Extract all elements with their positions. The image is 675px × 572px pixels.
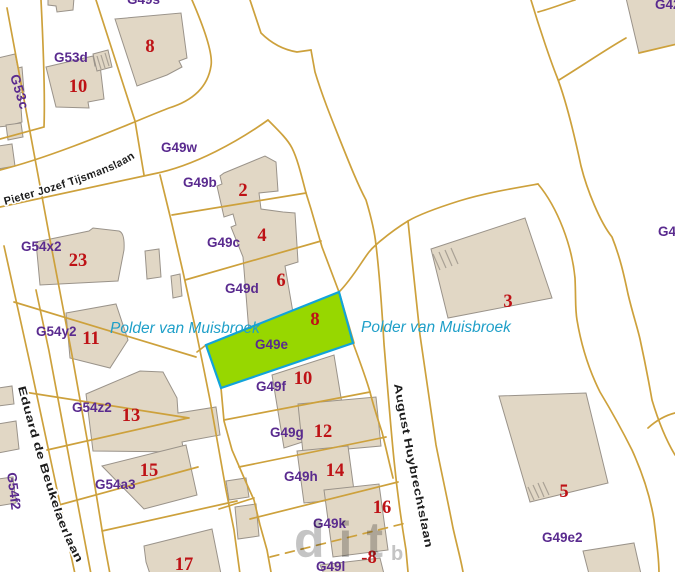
svg-text:G49e2: G49e2 <box>542 530 583 545</box>
svg-text:G54x2: G54x2 <box>21 239 62 254</box>
svg-text:6: 6 <box>276 271 285 291</box>
svg-text:G49d: G49d <box>225 281 259 296</box>
svg-text:8: 8 <box>145 37 154 57</box>
svg-text:3: 3 <box>503 292 512 312</box>
svg-text:G49b: G49b <box>183 175 217 190</box>
svg-text:dit: dit <box>294 512 397 568</box>
svg-text:2: 2 <box>238 181 247 201</box>
svg-text:10: 10 <box>294 369 313 389</box>
svg-text:14: 14 <box>326 461 345 481</box>
svg-text:G49c: G49c <box>207 235 241 250</box>
svg-text:23: 23 <box>69 251 88 271</box>
svg-text:G54z2: G54z2 <box>72 400 112 415</box>
svg-text:G49: G49 <box>658 224 675 239</box>
svg-text:17: 17 <box>175 555 194 572</box>
svg-text:G49w: G49w <box>161 140 198 155</box>
svg-text:G53d: G53d <box>54 50 88 65</box>
svg-text:b: b <box>391 543 403 565</box>
svg-text:G49e: G49e <box>255 337 289 352</box>
svg-text:G49f: G49f <box>256 379 287 394</box>
svg-text:8: 8 <box>310 310 319 330</box>
svg-text:G42: G42 <box>655 0 675 12</box>
svg-text:15: 15 <box>140 461 159 481</box>
svg-text:G54y2: G54y2 <box>36 324 77 339</box>
svg-text:11: 11 <box>82 329 99 349</box>
svg-text:10: 10 <box>69 77 88 97</box>
svg-text:Polder van Muisbroek: Polder van Muisbroek <box>361 319 512 336</box>
svg-text:13: 13 <box>122 406 141 426</box>
svg-text:12: 12 <box>314 422 333 442</box>
svg-text:G49s: G49s <box>127 0 160 7</box>
svg-text:5: 5 <box>559 482 568 502</box>
svg-text:G54a3: G54a3 <box>95 477 136 492</box>
svg-text:4: 4 <box>257 226 266 246</box>
svg-text:G49g: G49g <box>270 425 304 440</box>
svg-text:Polder van Muisbroek: Polder van Muisbroek <box>110 320 261 337</box>
svg-text:G49h: G49h <box>284 469 318 484</box>
